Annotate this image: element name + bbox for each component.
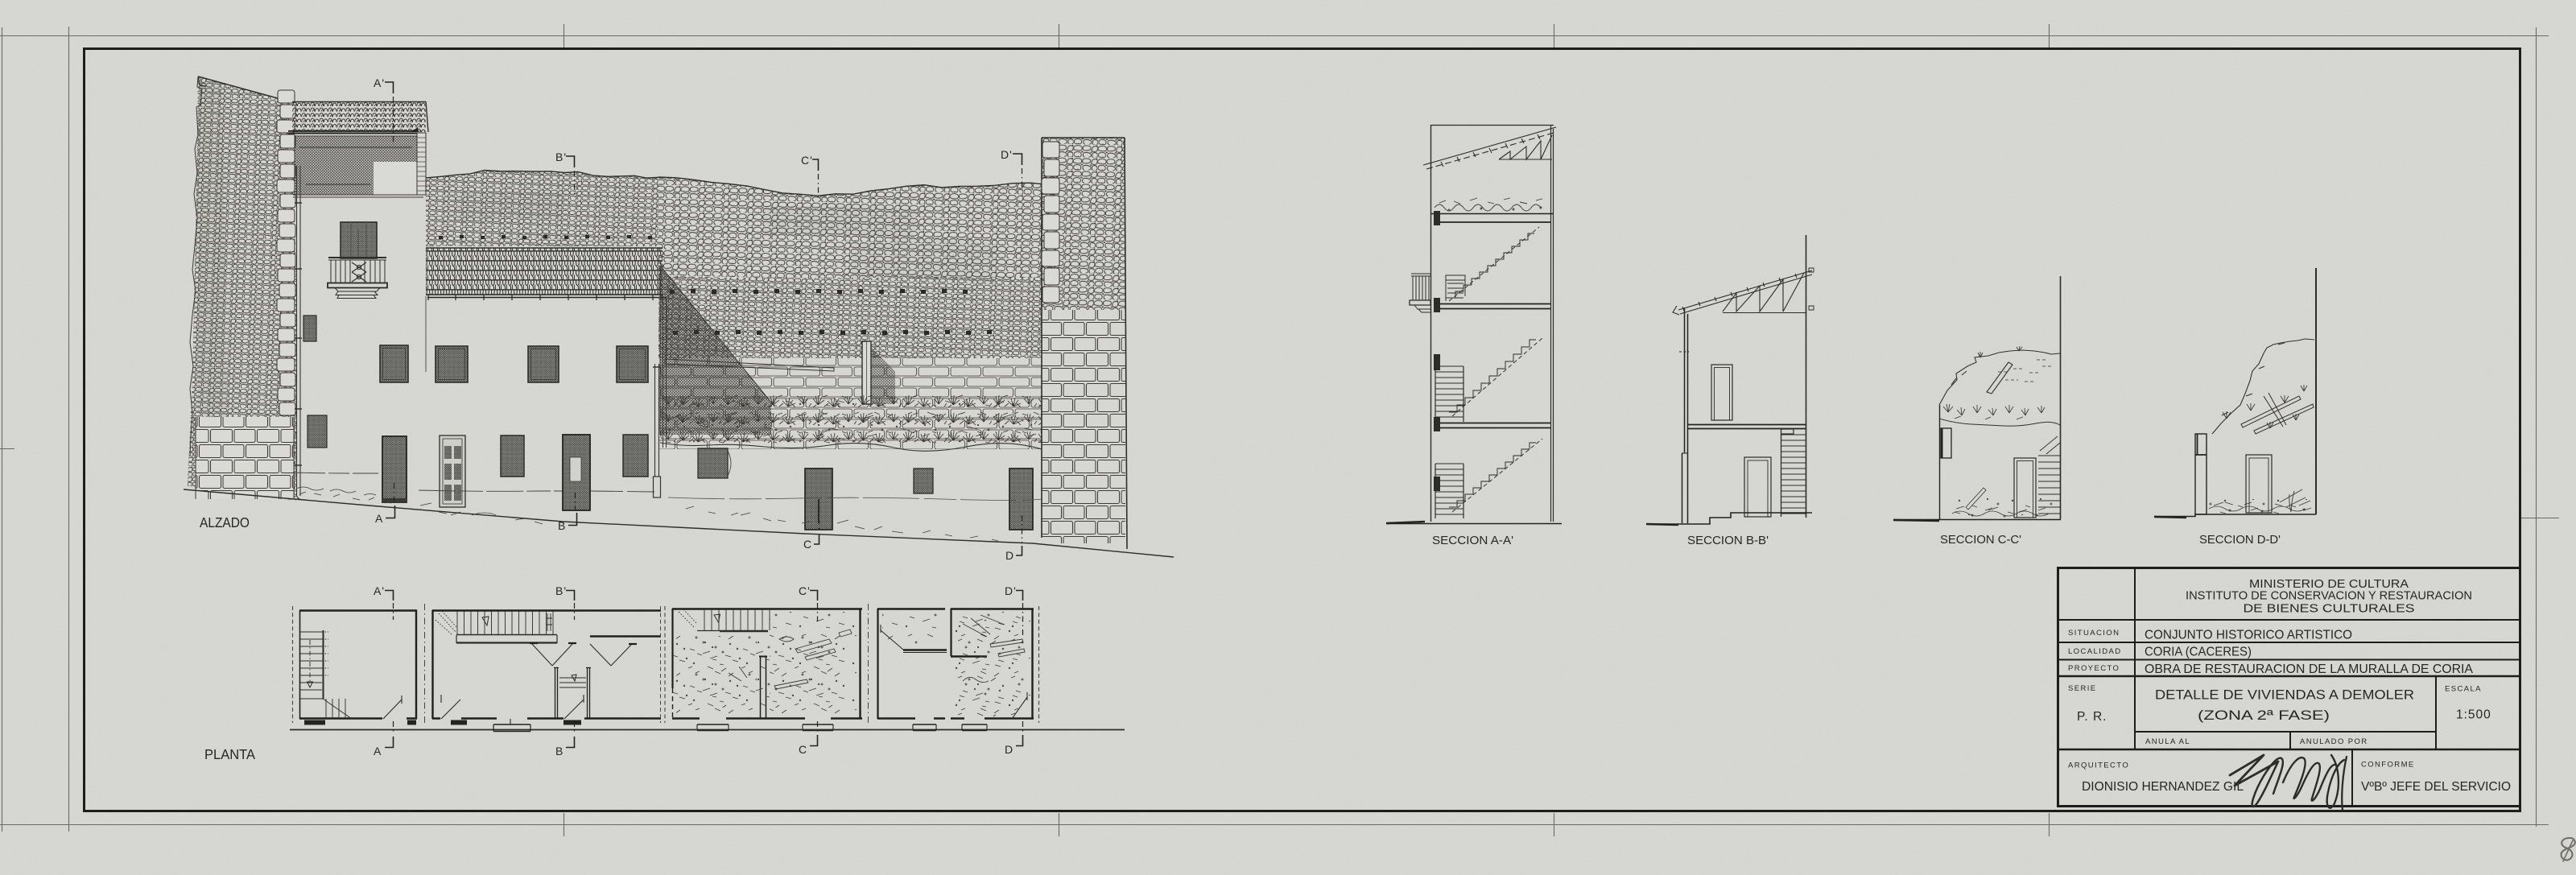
svg-text:OBRA DE RESTAURACION DE LA MUR: OBRA DE RESTAURACION DE LA MURALLA DE CO… <box>2145 662 2474 676</box>
svg-text:SERIE: SERIE <box>2068 684 2097 693</box>
svg-text:A: A <box>374 745 382 757</box>
svg-text:A: A <box>375 512 383 525</box>
svg-text:ANULA AL: ANULA AL <box>2145 737 2190 746</box>
svg-text:PROYECTO: PROYECTO <box>2068 664 2120 673</box>
svg-text:INSTITUTO DE CONSERVACION Y RE: INSTITUTO DE CONSERVACION Y RESTAURACION <box>2186 590 2472 603</box>
svg-text:CONJUNTO HISTORICO ARTISTICO: CONJUNTO HISTORICO ARTISTICO <box>2145 629 2352 642</box>
svg-text:CONFORME: CONFORME <box>2361 761 2415 770</box>
svg-text:C': C' <box>801 154 813 167</box>
svg-text:SECCION C-C': SECCION C-C' <box>1940 534 2021 547</box>
svg-text:SECCION B-B': SECCION B-B' <box>1687 534 1769 547</box>
svg-text:D: D <box>1005 743 1013 756</box>
svg-text:D': D' <box>1005 584 1017 597</box>
svg-text:SECCION D-D': SECCION D-D' <box>2199 534 2281 547</box>
svg-text:B: B <box>558 519 566 532</box>
svg-text:D': D' <box>1001 148 1013 161</box>
svg-text:PLANTA: PLANTA <box>204 746 255 762</box>
svg-text:(ZONA 2ª FASE): (ZONA 2ª FASE) <box>2198 708 2330 723</box>
svg-text:VºBº JEFE DEL SERVICIO: VºBº JEFE DEL SERVICIO <box>2361 780 2511 794</box>
svg-text:B: B <box>555 745 563 757</box>
svg-text:P. R.: P. R. <box>2077 710 2107 724</box>
svg-text:1:500: 1:500 <box>2456 708 2491 722</box>
svg-text:B': B' <box>555 151 567 163</box>
svg-text:DETALLE DE VIVIENDAS A DEMOLER: DETALLE DE VIVIENDAS A DEMOLER <box>2155 687 2414 703</box>
svg-text:SITUACION: SITUACION <box>2068 629 2120 638</box>
svg-text:CORIA (CACERES): CORIA (CACERES) <box>2145 646 2252 659</box>
svg-text:D: D <box>1005 549 1014 562</box>
svg-text:LOCALIDAD: LOCALIDAD <box>2068 647 2121 656</box>
svg-text:ALZADO: ALZADO <box>200 514 250 530</box>
svg-text:C': C' <box>799 584 811 597</box>
svg-text:DIONISIO HERNANDEZ GIL: DIONISIO HERNANDEZ GIL <box>2082 780 2244 794</box>
svg-text:C: C <box>799 743 807 756</box>
svg-text:C: C <box>803 538 812 551</box>
svg-text:B': B' <box>555 584 567 597</box>
svg-text:SECCION A-A': SECCION A-A' <box>1432 534 1513 547</box>
svg-text:ARQUITECTO: ARQUITECTO <box>2068 761 2129 770</box>
svg-text:A': A' <box>374 76 385 89</box>
svg-text:ESCALA: ESCALA <box>2445 685 2482 694</box>
svg-text:DE BIENES CULTURALES: DE BIENES CULTURALES <box>2244 603 2415 616</box>
svg-text:A': A' <box>374 584 385 597</box>
svg-text:ANULADO POR: ANULADO POR <box>2300 737 2368 746</box>
